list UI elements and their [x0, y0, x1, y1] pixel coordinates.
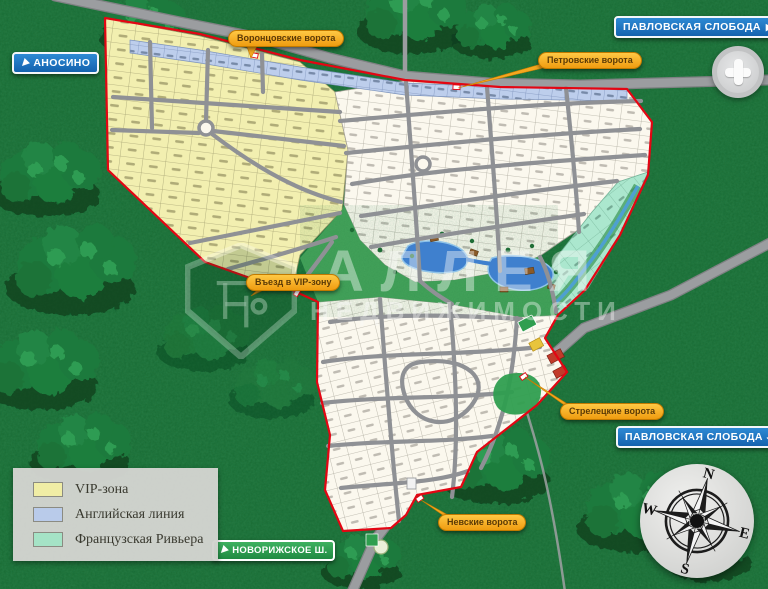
compass-south-label: S	[679, 561, 691, 578]
gate-label-text: Стрелецкие ворота	[569, 406, 655, 416]
legend-row-french: Французская Ривьера	[33, 532, 218, 548]
gate-label-text: Петровские ворота	[547, 55, 633, 65]
legend-row-vip: VIP-зона	[33, 482, 218, 498]
compass-east-label: E	[738, 525, 752, 543]
sign-novorizhskoe: ▶ НОВОРИЖСКОЕ Ш.	[212, 540, 335, 561]
compass-north-label: N	[701, 465, 716, 483]
gate-label-nevskie: Невские ворота	[438, 514, 526, 531]
sign-anosino: ▶ АНОСИНО	[12, 52, 99, 74]
arrow-sw-icon: ▶	[19, 57, 31, 69]
legend-swatch-vip	[33, 482, 63, 497]
compass-rose: N E S W	[640, 464, 754, 578]
sign-pavlovskaya-right-label: ПАВЛОВСКАЯ СЛОБОДА	[625, 431, 763, 443]
map-legend: VIP-зона Английская линия Французская Ри…	[13, 468, 218, 561]
plus-icon	[734, 59, 743, 85]
sign-anosino-label: АНОСИНО	[33, 57, 90, 69]
gate-label-petrovskie: Петровские ворота	[538, 52, 642, 69]
sign-pavlovskaya-top-label: ПАВЛОВСКАЯ СЛОБОДА	[623, 21, 761, 33]
legend-label: VIP-зона	[75, 482, 128, 498]
compass-star: N E S W	[640, 464, 754, 578]
gate-label-text: Воронцовские ворота	[237, 33, 335, 43]
legend-swatch-english	[33, 507, 63, 522]
gate-label-vorontsovskie: Воронцовские ворота	[228, 30, 344, 47]
sign-pavlovskaya-top: ПАВЛОВСКАЯ СЛОБОДА ▶	[614, 16, 768, 38]
gate-label-vip-entrance: Въезд в VIP-зону	[246, 274, 340, 291]
gate-label-streletskie: Стрелецкие ворота	[560, 403, 664, 420]
sign-pavlovskaya-right: ПАВЛОВСКАЯ СЛОБОДА ▶	[616, 426, 768, 448]
compass-west-label: W	[640, 501, 658, 520]
legend-swatch-french	[33, 532, 63, 547]
estate-map-page: АЛЛЕЯ НЕДВИЖИМОСТИ ▶ АНОСИНО ПАВЛОВСКАЯ …	[0, 0, 768, 589]
legend-label: Английская линия	[75, 507, 184, 523]
legend-row-english: Английская линия	[33, 507, 218, 523]
gate-label-text: Невские ворота	[447, 517, 517, 527]
arrow-sw-icon: ▶	[218, 545, 229, 556]
sign-novorizhskoe-label: НОВОРИЖСКОЕ Ш.	[232, 545, 327, 556]
legend-label: Французская Ривьера	[75, 532, 203, 548]
zoom-in-button[interactable]	[712, 46, 764, 98]
gate-label-text: Въезд в VIP-зону	[255, 277, 331, 287]
